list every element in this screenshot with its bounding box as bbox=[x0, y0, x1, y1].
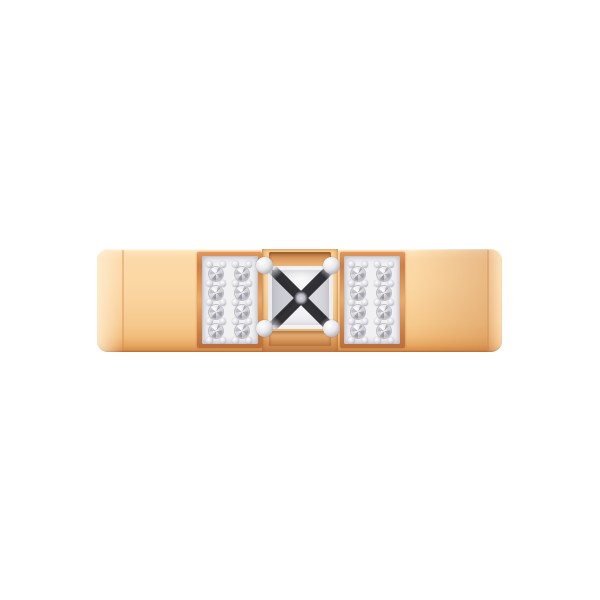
bead-prong bbox=[232, 299, 239, 306]
bead-prong bbox=[220, 337, 227, 344]
band-right-edge-seam bbox=[487, 250, 489, 351]
bead-prong bbox=[374, 299, 381, 306]
bead-prong bbox=[374, 337, 381, 344]
bead-prong bbox=[232, 337, 239, 344]
bead-prong bbox=[348, 318, 355, 325]
bead-prong bbox=[246, 280, 253, 287]
bead-prong bbox=[220, 299, 227, 306]
setting-gallery-bottom bbox=[269, 331, 331, 346]
bead-prong bbox=[206, 261, 213, 268]
bead-prong bbox=[374, 261, 381, 268]
bead-prong bbox=[362, 318, 369, 325]
bead-prong bbox=[348, 299, 355, 306]
bead-prong bbox=[246, 337, 253, 344]
bead-prong bbox=[348, 337, 355, 344]
ring-product-photo bbox=[0, 0, 600, 600]
bead-prong bbox=[220, 261, 227, 268]
bead-prong bbox=[388, 299, 395, 306]
bead-prong bbox=[362, 280, 369, 287]
band-left-edge-seam bbox=[122, 250, 124, 351]
bead-prong bbox=[206, 318, 213, 325]
bead-prong bbox=[362, 299, 369, 306]
bead-prong bbox=[374, 318, 381, 325]
bead-prong bbox=[206, 299, 213, 306]
prong-bottom-right bbox=[323, 320, 340, 337]
bead-prong bbox=[246, 318, 253, 325]
bead-prong bbox=[232, 261, 239, 268]
bead-prong bbox=[388, 337, 395, 344]
bead-prong bbox=[388, 318, 395, 325]
prong-bottom-left bbox=[256, 320, 273, 337]
prong-top-left bbox=[256, 257, 273, 274]
bead-prong bbox=[220, 318, 227, 325]
bead-prong bbox=[388, 280, 395, 287]
bead-prong bbox=[206, 280, 213, 287]
bead-prong bbox=[388, 261, 395, 268]
bead-prong bbox=[232, 318, 239, 325]
bead-prong bbox=[246, 299, 253, 306]
bead-prong bbox=[348, 261, 355, 268]
princess-diamond bbox=[268, 266, 333, 329]
bead-prong bbox=[362, 261, 369, 268]
bead-prong bbox=[348, 280, 355, 287]
bead-prong bbox=[362, 337, 369, 344]
diamond-center-glint bbox=[294, 291, 308, 305]
bead-prong bbox=[374, 280, 381, 287]
bead-prong bbox=[220, 280, 227, 287]
bead-prong bbox=[232, 280, 239, 287]
setting-gallery-top bbox=[269, 252, 331, 267]
prong-top-right bbox=[323, 257, 340, 274]
bead-prong bbox=[246, 261, 253, 268]
bead-prong bbox=[206, 337, 213, 344]
